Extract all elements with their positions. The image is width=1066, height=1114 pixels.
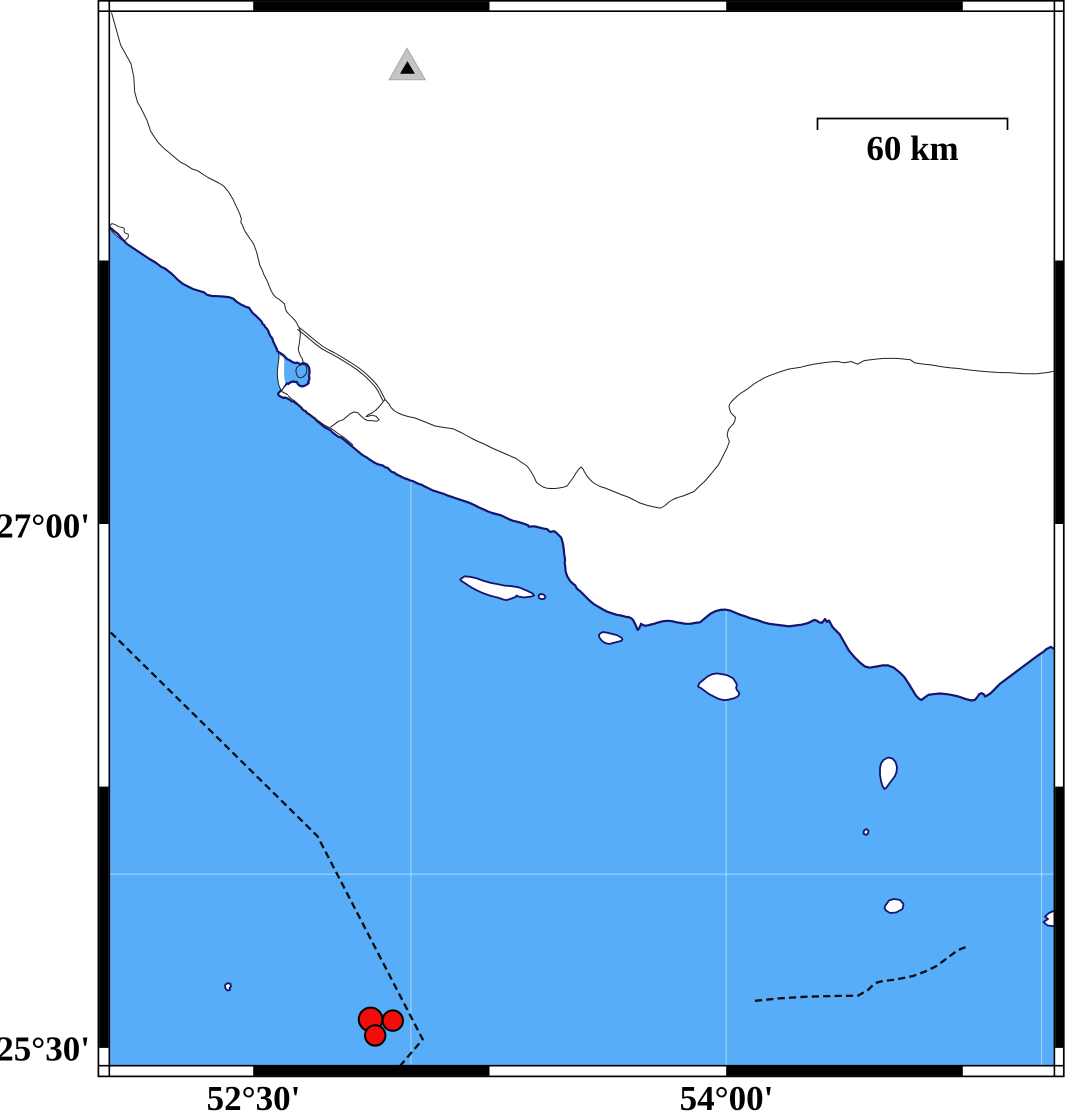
svg-text:52°30': 52°30': [207, 1079, 301, 1114]
svg-text:54°00': 54°00': [680, 1079, 774, 1114]
svg-text:60 km: 60 km: [866, 129, 958, 168]
svg-text:27°00': 27°00': [0, 507, 90, 546]
svg-text:25°30': 25°30': [0, 1030, 90, 1069]
